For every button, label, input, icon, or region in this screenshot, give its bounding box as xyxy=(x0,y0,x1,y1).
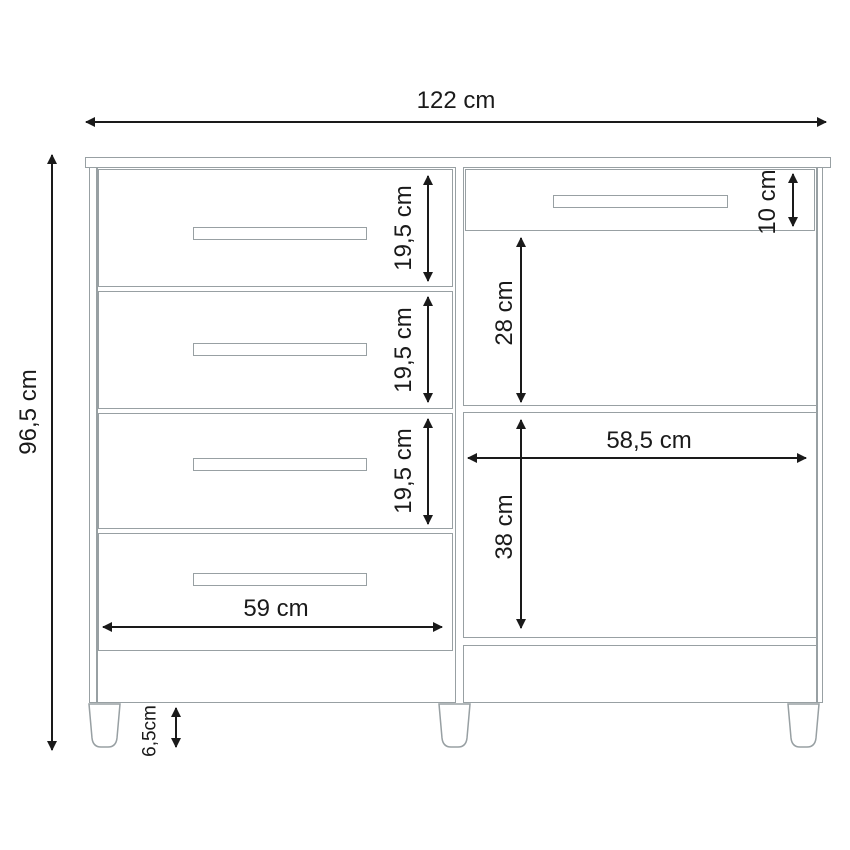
foot-left xyxy=(87,703,122,749)
left-drawer-3-height-arrow xyxy=(427,419,429,524)
feet-height-label: 6,5cm xyxy=(141,705,160,757)
left-drawer-2-height-label: 19,5 cm xyxy=(392,307,416,392)
drawer-1-handle xyxy=(193,227,367,240)
left-drawer-width-arrow xyxy=(103,626,442,628)
right-top-drawer-height-label: 10 cm xyxy=(756,169,780,234)
drawer-3-handle xyxy=(193,458,367,471)
right-shelf-lower xyxy=(463,637,816,646)
left-drawer-1-height-label: 19,5 cm xyxy=(392,185,416,270)
right-section-width-label: 58,5 cm xyxy=(606,429,691,453)
lower-compartment-height-arrow xyxy=(520,420,522,628)
left-drawer-width-label: 59 cm xyxy=(243,597,308,621)
foot-right xyxy=(786,703,821,749)
left-drawer-3-height-label: 19,5 cm xyxy=(392,428,416,513)
foot-center xyxy=(437,703,472,749)
center-divider-panel xyxy=(455,167,464,703)
feet-height-arrow xyxy=(175,708,177,747)
total-width-label: 122 cm xyxy=(417,89,496,113)
total-height-label: 96,5 cm xyxy=(17,369,41,454)
total-height-arrow xyxy=(51,155,53,750)
right-drawer-handle xyxy=(553,195,728,208)
drawer-4-handle xyxy=(193,573,367,586)
right-shelf-upper xyxy=(463,405,816,413)
total-width-arrow xyxy=(86,121,826,123)
left-drawer-1-height-arrow xyxy=(427,176,429,281)
right-top-drawer-height-arrow xyxy=(792,174,794,226)
dimension-drawing: 122 cm 96,5 cm 19,5 cm 19,5 cm 19,5 cm 1… xyxy=(0,0,850,850)
right-section-width-arrow xyxy=(468,457,806,459)
left-drawer-2-height-arrow xyxy=(427,297,429,402)
drawer-2-handle xyxy=(193,343,367,356)
upper-compartment-height-label: 28 cm xyxy=(493,280,517,345)
right-side-panel-inner-line xyxy=(816,168,818,702)
upper-compartment-height-arrow xyxy=(520,238,522,402)
lower-compartment-height-label: 38 cm xyxy=(493,494,517,559)
left-drawer-4 xyxy=(98,533,453,651)
